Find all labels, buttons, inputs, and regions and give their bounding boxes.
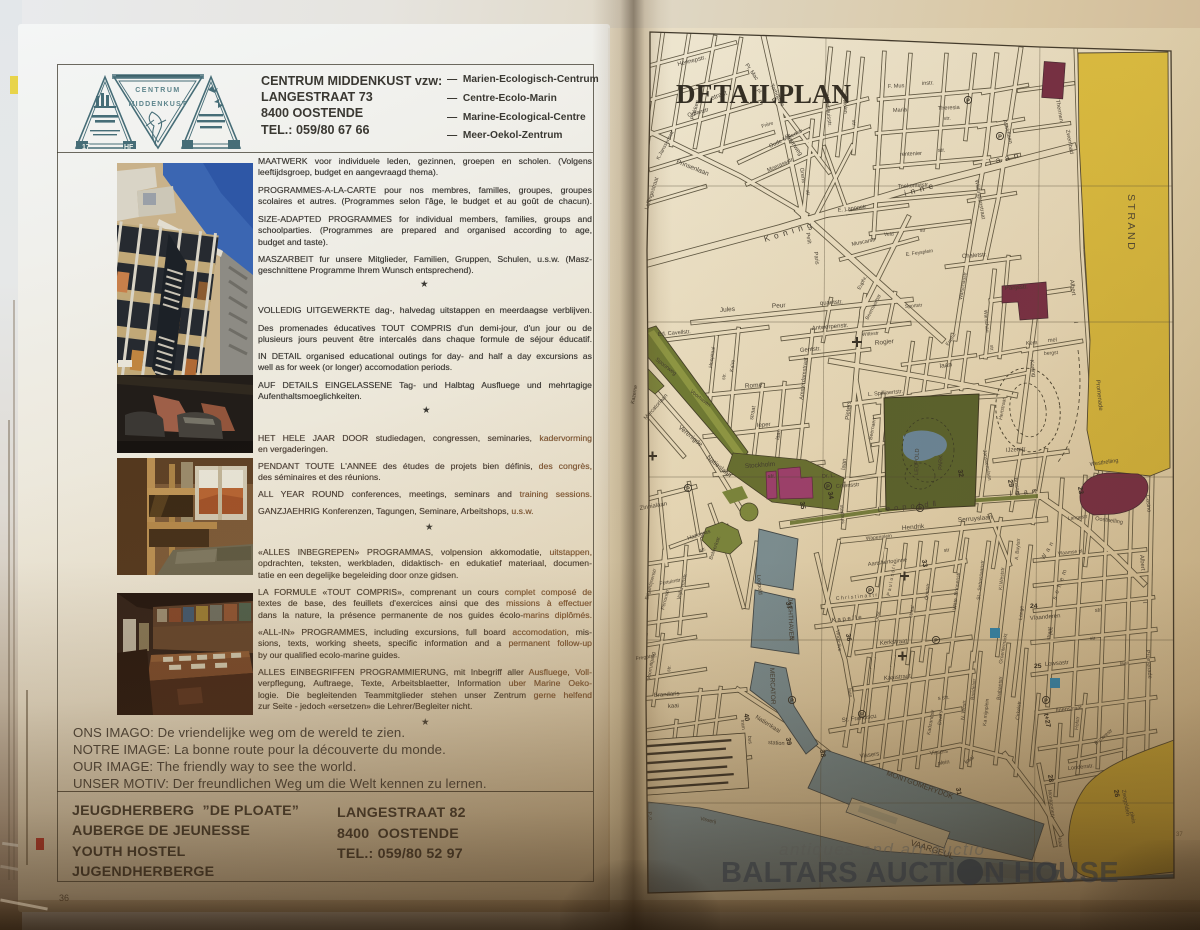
svg-text:station: station [768, 740, 785, 747]
svg-text:instr.: instr. [922, 80, 935, 87]
svg-text:P: P [918, 507, 922, 513]
svg-text:rentenier: rentenier [900, 151, 922, 158]
svg-text:Kazerne: Kazerne [630, 384, 639, 404]
svg-text:P: P [868, 589, 872, 595]
svg-text:bus: bus [746, 736, 753, 745]
svg-text:DETAILPLAN: DETAILPLAN [676, 79, 852, 109]
svg-text:STRAND: STRAND [1125, 194, 1137, 252]
svg-text:P: P [790, 699, 794, 705]
svg-text:str.: str. [768, 473, 776, 480]
svg-text:str.: str. [944, 116, 951, 122]
svg-text:P: P [998, 135, 1002, 141]
svg-text:P: P [860, 713, 864, 719]
svg-text:Theresia: Theresia [938, 105, 961, 112]
svg-text:laan: laan [846, 688, 853, 698]
svg-text:37: 37 [784, 601, 792, 610]
svg-text:P: P [686, 487, 690, 493]
svg-text:25: 25 [1034, 663, 1042, 670]
svg-text:Peur: Peur [772, 302, 787, 310]
svg-text:36: 36 [844, 633, 852, 642]
svg-text:P: P [1044, 699, 1048, 705]
svg-text:str: str [1090, 636, 1096, 642]
svg-text:Rome: Rome [745, 382, 763, 390]
svg-text:24: 24 [1030, 603, 1038, 610]
svg-text:23: 23 [1076, 486, 1084, 495]
svg-text:31: 31 [954, 787, 962, 796]
svg-text:Maria: Maria [893, 107, 908, 114]
svg-text:str.: str. [988, 345, 995, 352]
svg-text:26: 26 [1112, 789, 1120, 798]
svg-text:str: str [944, 547, 951, 554]
svg-text:Kem: Kem [1026, 340, 1038, 347]
svg-text:P: P [934, 639, 938, 645]
svg-text:str.: str. [721, 373, 728, 380]
svg-text:40: 40 [742, 713, 750, 722]
svg-text:33: 33 [920, 559, 928, 568]
svg-text:35: 35 [798, 501, 806, 510]
svg-text:F. Mus: F. Mus [888, 83, 905, 90]
svg-text:puc: puc [1048, 626, 1055, 635]
svg-text:Dr. L.: Dr. L. [822, 473, 836, 480]
svg-text:39: 39 [784, 737, 792, 746]
svg-text:37: 37 [1176, 832, 1183, 838]
svg-text:32: 32 [956, 469, 964, 478]
svg-text:str.: str. [850, 120, 857, 127]
svg-text:LEOPOLD: LEOPOLD [914, 448, 921, 475]
svg-text:38: 38 [818, 749, 826, 758]
svg-text:MERCATOR: MERCATOR [768, 668, 776, 705]
svg-text:mel: mel [1048, 337, 1057, 344]
svg-text:str.: str. [938, 148, 946, 154]
svg-text:PARK: PARK [938, 455, 945, 470]
svg-text:str: str [804, 189, 811, 196]
svg-text:str.: str. [666, 665, 673, 673]
svg-text:str: str [920, 228, 926, 234]
svg-text:Jules: Jules [720, 306, 736, 314]
svg-text:Veld: Veld [884, 231, 894, 238]
svg-text:bergst: bergst [1044, 350, 1059, 357]
svg-text:laan: laan [841, 458, 848, 470]
svg-text:laan: laan [1120, 660, 1130, 667]
svg-text:29: 29 [1006, 479, 1014, 488]
svg-text:P: P [826, 485, 830, 491]
svg-text:kaai: kaai [668, 703, 679, 710]
svg-text:Ieper: Ieper [757, 422, 771, 429]
svg-text:28: 28 [1046, 774, 1054, 783]
svg-text:34: 34 [826, 491, 834, 500]
svg-text:str: str [1095, 607, 1102, 614]
svg-text:P: P [966, 99, 970, 105]
